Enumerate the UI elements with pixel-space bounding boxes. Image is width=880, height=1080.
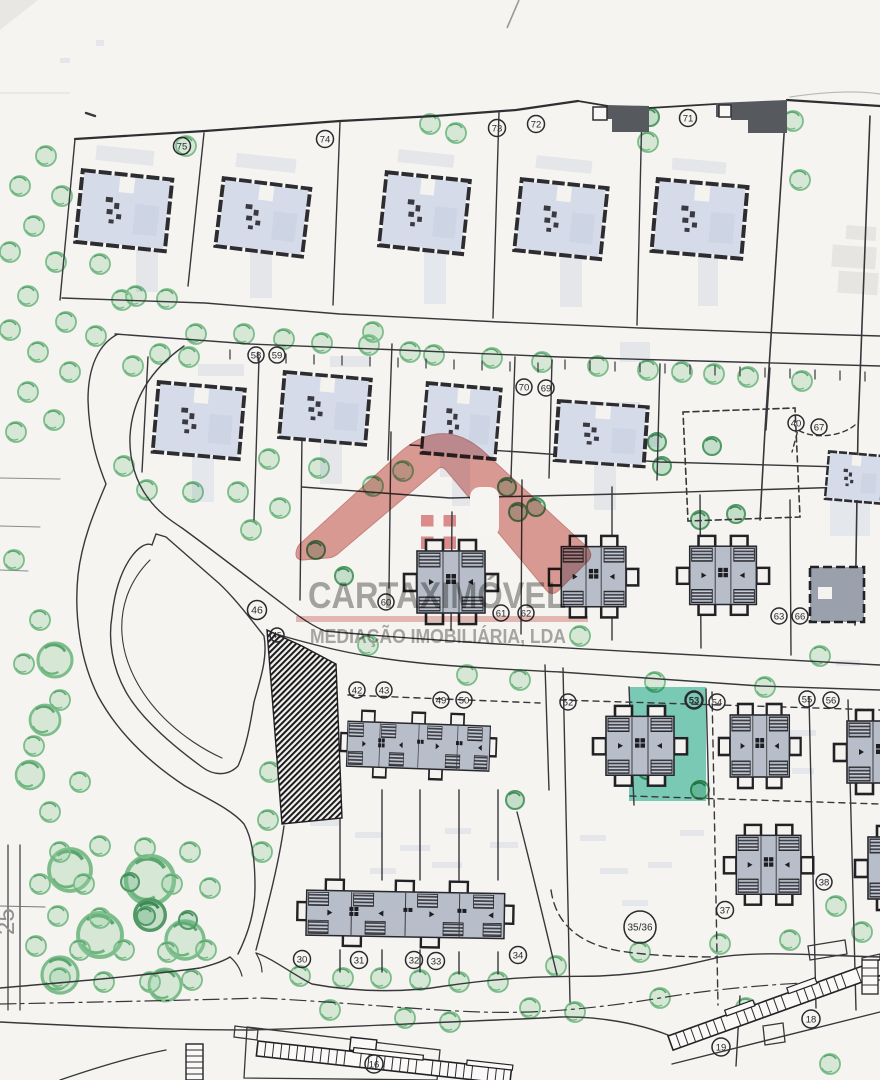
- svg-text:42: 42: [352, 686, 363, 697]
- svg-text:69: 69: [541, 384, 552, 395]
- svg-text:34: 34: [513, 951, 524, 962]
- svg-text:70: 70: [519, 383, 530, 394]
- svg-text:16: 16: [369, 1060, 380, 1071]
- svg-text:35/36: 35/36: [627, 923, 652, 934]
- svg-text:45: 45: [273, 631, 282, 640]
- svg-text:49: 49: [436, 696, 447, 707]
- svg-text:75: 75: [177, 142, 188, 153]
- svg-text:38: 38: [819, 878, 830, 889]
- svg-text:43: 43: [379, 686, 390, 697]
- svg-text:18: 18: [806, 1015, 817, 1026]
- svg-text:30: 30: [297, 955, 308, 966]
- svg-text:67: 67: [814, 423, 825, 434]
- svg-text:40: 40: [791, 419, 802, 430]
- svg-text:25: 25: [0, 908, 20, 935]
- svg-text:73: 73: [492, 124, 503, 135]
- svg-text:50: 50: [459, 696, 470, 707]
- svg-text:19: 19: [716, 1043, 727, 1054]
- svg-text:52: 52: [563, 698, 574, 709]
- svg-text:55: 55: [802, 695, 813, 706]
- svg-text:56: 56: [826, 696, 837, 707]
- svg-text:32: 32: [409, 956, 420, 967]
- svg-text:66: 66: [795, 612, 806, 623]
- svg-text:63: 63: [774, 612, 785, 623]
- svg-text:33: 33: [431, 957, 442, 968]
- svg-text:74: 74: [320, 135, 331, 146]
- svg-text:31: 31: [354, 956, 365, 967]
- svg-text:59: 59: [272, 351, 283, 362]
- svg-text:MEDIAÇÃO IMOBILIÁRIA, LDA: MEDIAÇÃO IMOBILIÁRIA, LDA: [310, 625, 566, 648]
- svg-text:54: 54: [712, 698, 723, 709]
- svg-text:46: 46: [251, 605, 263, 617]
- svg-text:58: 58: [251, 351, 262, 362]
- svg-text:72: 72: [531, 120, 542, 131]
- svg-text:53: 53: [689, 696, 700, 707]
- svg-text:CARTAXIMÓVEL: CARTAXIMÓVEL: [308, 574, 566, 616]
- svg-text:37: 37: [720, 906, 731, 917]
- svg-text:71: 71: [683, 114, 694, 125]
